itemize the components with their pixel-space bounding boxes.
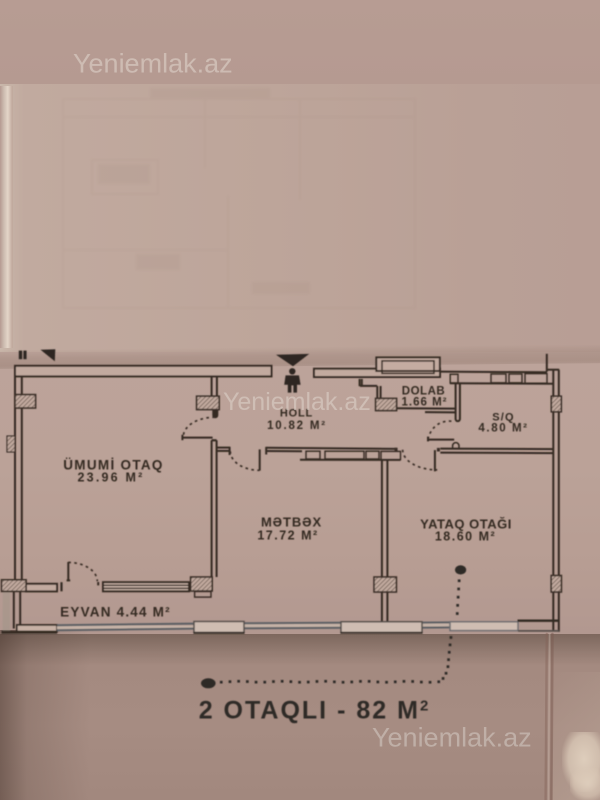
svg-text:2 OTAQLI - 82 M2: 2 OTAQLI - 82 M2 — [199, 697, 431, 725]
svg-text:18.60 M²: 18.60 M² — [435, 530, 496, 544]
svg-text:10.82 M²: 10.82 M² — [267, 420, 327, 432]
svg-text:17.72 M²: 17.72 M² — [257, 529, 318, 543]
svg-text:Yeniemlak.az: Yeniemlak.az — [372, 723, 532, 753]
svg-text:23.96 M²: 23.96 M² — [78, 471, 145, 485]
svg-text:EYVAN 4.44 M²: EYVAN 4.44 M² — [60, 605, 171, 620]
svg-text:MƏTBƏX: MƏTBƏX — [261, 515, 322, 530]
svg-text:4.80 M²: 4.80 M² — [478, 423, 528, 435]
svg-text:Yeniemlak.az: Yeniemlak.az — [73, 49, 233, 79]
svg-text:Yeniemlak.az: Yeniemlak.az — [223, 388, 371, 416]
svg-text:1.66 M²: 1.66 M² — [402, 397, 448, 409]
